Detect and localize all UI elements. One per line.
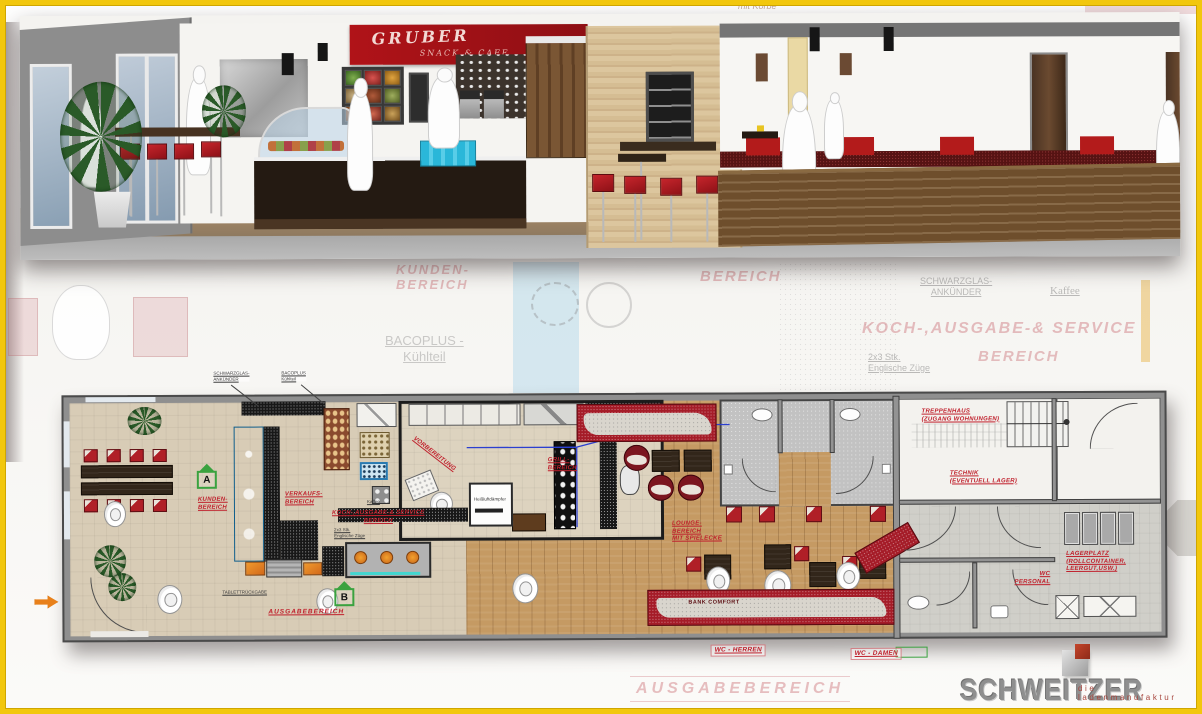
urinal — [724, 464, 733, 474]
label-lagerplatz: LAGERPLATZ (ROLLCONTAINER, LEERGUT,USW.) — [1066, 551, 1126, 574]
callout-schwarzglas: SCHWARZGLAS- ANKÜNDER — [213, 371, 249, 382]
wm-kunden-bereich: KUNDEN- BEREICH — [396, 263, 470, 293]
label-wc-personal: WC PERSONAL — [1006, 571, 1050, 586]
callout-bacoplus: BACOPLUS Kühlteil — [281, 370, 306, 381]
stool-leg — [602, 192, 604, 242]
chair-red — [759, 506, 775, 522]
callout-englische-zuege: 2x3 Stk. Englische Züge — [334, 527, 365, 538]
chair-red — [806, 506, 822, 522]
wall-wc-personal-div — [972, 562, 977, 628]
dining-chair-red — [746, 137, 780, 155]
stool-leg — [156, 160, 158, 216]
label-technik: TECHNIK (EVENTUELL LAGER) — [950, 470, 1017, 485]
tall-cabinet — [526, 42, 588, 158]
wm-bacoplus: BACOPLUS - Kühlteil — [385, 333, 464, 364]
round-table — [624, 445, 650, 471]
pendant-lamp-3 — [810, 27, 820, 51]
wm-speckle-band — [778, 262, 896, 393]
bench-seat — [584, 413, 712, 436]
lounge-table — [764, 544, 791, 569]
wm-blue-counter — [513, 262, 579, 393]
window-mullion — [145, 56, 150, 222]
floorplan-panel: Heißluftdämpfer — [61, 391, 1167, 643]
label-wc-damen: WC - DAMEN — [851, 648, 903, 660]
callout-kaffee: Kaffee — [367, 499, 380, 505]
toilet-personal — [907, 596, 929, 610]
presentation-board: mit Körbe KUNDEN- BEREICH BEREICH BACOPL… — [0, 0, 1202, 714]
stool-leg — [183, 159, 185, 215]
wall-frame-1 — [756, 53, 768, 81]
bank-comfort-bench: BANK COMFORT — [647, 589, 894, 626]
espresso-machine-1 — [460, 90, 480, 118]
counter-front — [254, 156, 526, 229]
chair-red — [686, 557, 701, 572]
wc-divider-wall-2 — [829, 399, 834, 453]
stairs-dashed-treads — [912, 423, 1007, 447]
pillar-ledge — [620, 142, 716, 151]
chair-red — [870, 506, 886, 522]
label-verkaufsbereich: VERKAUFS- BEREICH — [285, 491, 323, 506]
lounge-table — [684, 450, 712, 472]
high-table-center — [618, 154, 666, 162]
wm-mit-koerbe: mit Körbe — [738, 1, 777, 11]
heissluft-label: Heißluftdämpfer — [474, 496, 506, 501]
wm-koch-service: KOCH-,AUSGABE-& SERVICE — [862, 320, 1136, 338]
label-grillbereich: GRILL- BEREICH — [548, 457, 577, 472]
lounge-table — [652, 450, 680, 472]
chair-red — [726, 506, 742, 522]
planter-box — [92, 192, 132, 228]
wood-counter-foreground — [718, 163, 1180, 247]
dining-chair-red — [1080, 136, 1114, 154]
wall-room-divider — [1051, 398, 1056, 501]
wood-door-1 — [1030, 52, 1068, 164]
storage-shelf-crossed — [1083, 596, 1136, 617]
barstool-red — [201, 141, 221, 157]
wc-divider-wall — [777, 399, 782, 453]
bank-comfort-label: BANK COMFORT — [688, 599, 739, 605]
toilet — [752, 408, 773, 421]
heissluft-box: Heißluftdämpfer — [469, 482, 513, 526]
hot-plate — [354, 551, 367, 564]
wm-schwarzglas: SCHWARZGLAS- ANKÜNDER — [920, 276, 992, 298]
locker — [1100, 512, 1116, 545]
hot-plate — [380, 551, 393, 564]
hot-plate — [406, 551, 419, 564]
pendant-lamp-4 — [884, 27, 894, 51]
wm-bereich: BEREICH — [700, 268, 782, 285]
round-table — [678, 475, 704, 501]
counter-light-strip — [350, 572, 420, 575]
sign-line1: GRUBER — [371, 26, 470, 49]
label-ausgabebereich: AUSGABEBEREICH — [268, 608, 344, 616]
wm-kaffee: Kaffee — [1050, 285, 1080, 298]
render-panel: GRUBER SNACK & CAFE — [20, 12, 1181, 260]
menu-photo — [383, 88, 400, 104]
urinal — [882, 464, 891, 474]
wm-person — [52, 285, 110, 360]
wm-circle — [586, 282, 632, 328]
cafe-table — [742, 131, 778, 138]
menu-photo — [383, 70, 400, 86]
toilet — [840, 408, 861, 421]
logo-cube-icon — [1060, 644, 1094, 678]
counter-black-small — [322, 546, 344, 576]
heissluft-bar — [475, 508, 503, 512]
storage-box-crossed — [1055, 595, 1079, 619]
barstool-red — [147, 144, 167, 160]
mannequin-barista — [428, 76, 460, 148]
marker-b: B — [334, 588, 354, 606]
wm-chair-right — [133, 297, 188, 357]
stool-leg — [634, 194, 636, 242]
cube-red-corner — [1075, 644, 1090, 659]
chalkboard — [409, 73, 429, 123]
person-figure — [512, 573, 538, 603]
espresso-machine-2 — [484, 90, 504, 118]
barstool-red — [174, 143, 194, 159]
wm-orange-strip — [1141, 280, 1150, 362]
menu-photo — [384, 106, 401, 122]
locker — [1118, 512, 1134, 545]
locker — [1082, 512, 1098, 545]
cabinet-top-light — [526, 36, 588, 43]
dining-chair-red — [840, 137, 874, 155]
stair-post — [1064, 419, 1070, 425]
yellow-cup — [757, 125, 764, 131]
barstool-red — [592, 174, 614, 192]
palm-plant-small — [202, 85, 246, 137]
wm-ausgabebereich: AUSGABEBEREICH — [630, 676, 850, 702]
chair-red — [794, 546, 809, 561]
label-koch-ausgabe-service: KOCH-,AUSGABE-& SERVICE BEREICH — [332, 510, 425, 525]
logo: SCHWEITZER die ladenmanufaktur — [960, 642, 1195, 708]
pendant-lamp-1 — [282, 53, 294, 75]
mannequin-customer-woman — [347, 91, 373, 191]
marker-a: A — [197, 471, 217, 489]
tray-station — [303, 562, 322, 575]
pillar-shelf-opening — [646, 72, 694, 142]
wall-frame-2 — [840, 53, 852, 75]
palm-plant-large — [60, 82, 142, 192]
stool-leg — [706, 194, 708, 242]
table-leg — [640, 162, 642, 240]
stool-leg — [670, 196, 672, 242]
locker — [1064, 512, 1080, 545]
mannequin-seated-friend — [824, 99, 844, 159]
person-figure — [836, 562, 860, 590]
label-lounge: LOUNGE- BEREICH MIT SPIELECKE — [672, 521, 722, 544]
barstool-red — [660, 178, 682, 196]
wave-bench-top — [577, 404, 717, 443]
round-table — [648, 475, 674, 501]
barstool-red — [696, 176, 718, 194]
wm-bereich-2: BEREICH — [978, 348, 1060, 365]
tray-rail-counter — [266, 559, 302, 577]
display-food — [268, 141, 344, 151]
label-treppenhaus: TREPPENHAUS (ZUGANG WOHNUNGEN) — [922, 408, 1000, 423]
callout-tablettrueckgabe: TABLETTRÜCKGABE — [222, 590, 267, 596]
barstool-red — [624, 176, 646, 194]
wm-chair-left — [8, 298, 38, 356]
wc-corridor-wood — [779, 452, 831, 506]
logo-tagline: die ladenmanufaktur — [1078, 684, 1195, 702]
wm-circle-dashed — [531, 282, 579, 326]
stool-leg — [210, 157, 212, 213]
lounge-table — [809, 562, 836, 587]
dining-chair-red — [940, 137, 974, 155]
label-wc-herren: WC - HERREN — [711, 644, 766, 656]
pendant-lamp-2 — [318, 43, 328, 61]
tray-station — [245, 562, 265, 576]
label-kundenbereich: KUNDEN- BEREICH — [198, 497, 228, 512]
sink — [990, 605, 1008, 618]
